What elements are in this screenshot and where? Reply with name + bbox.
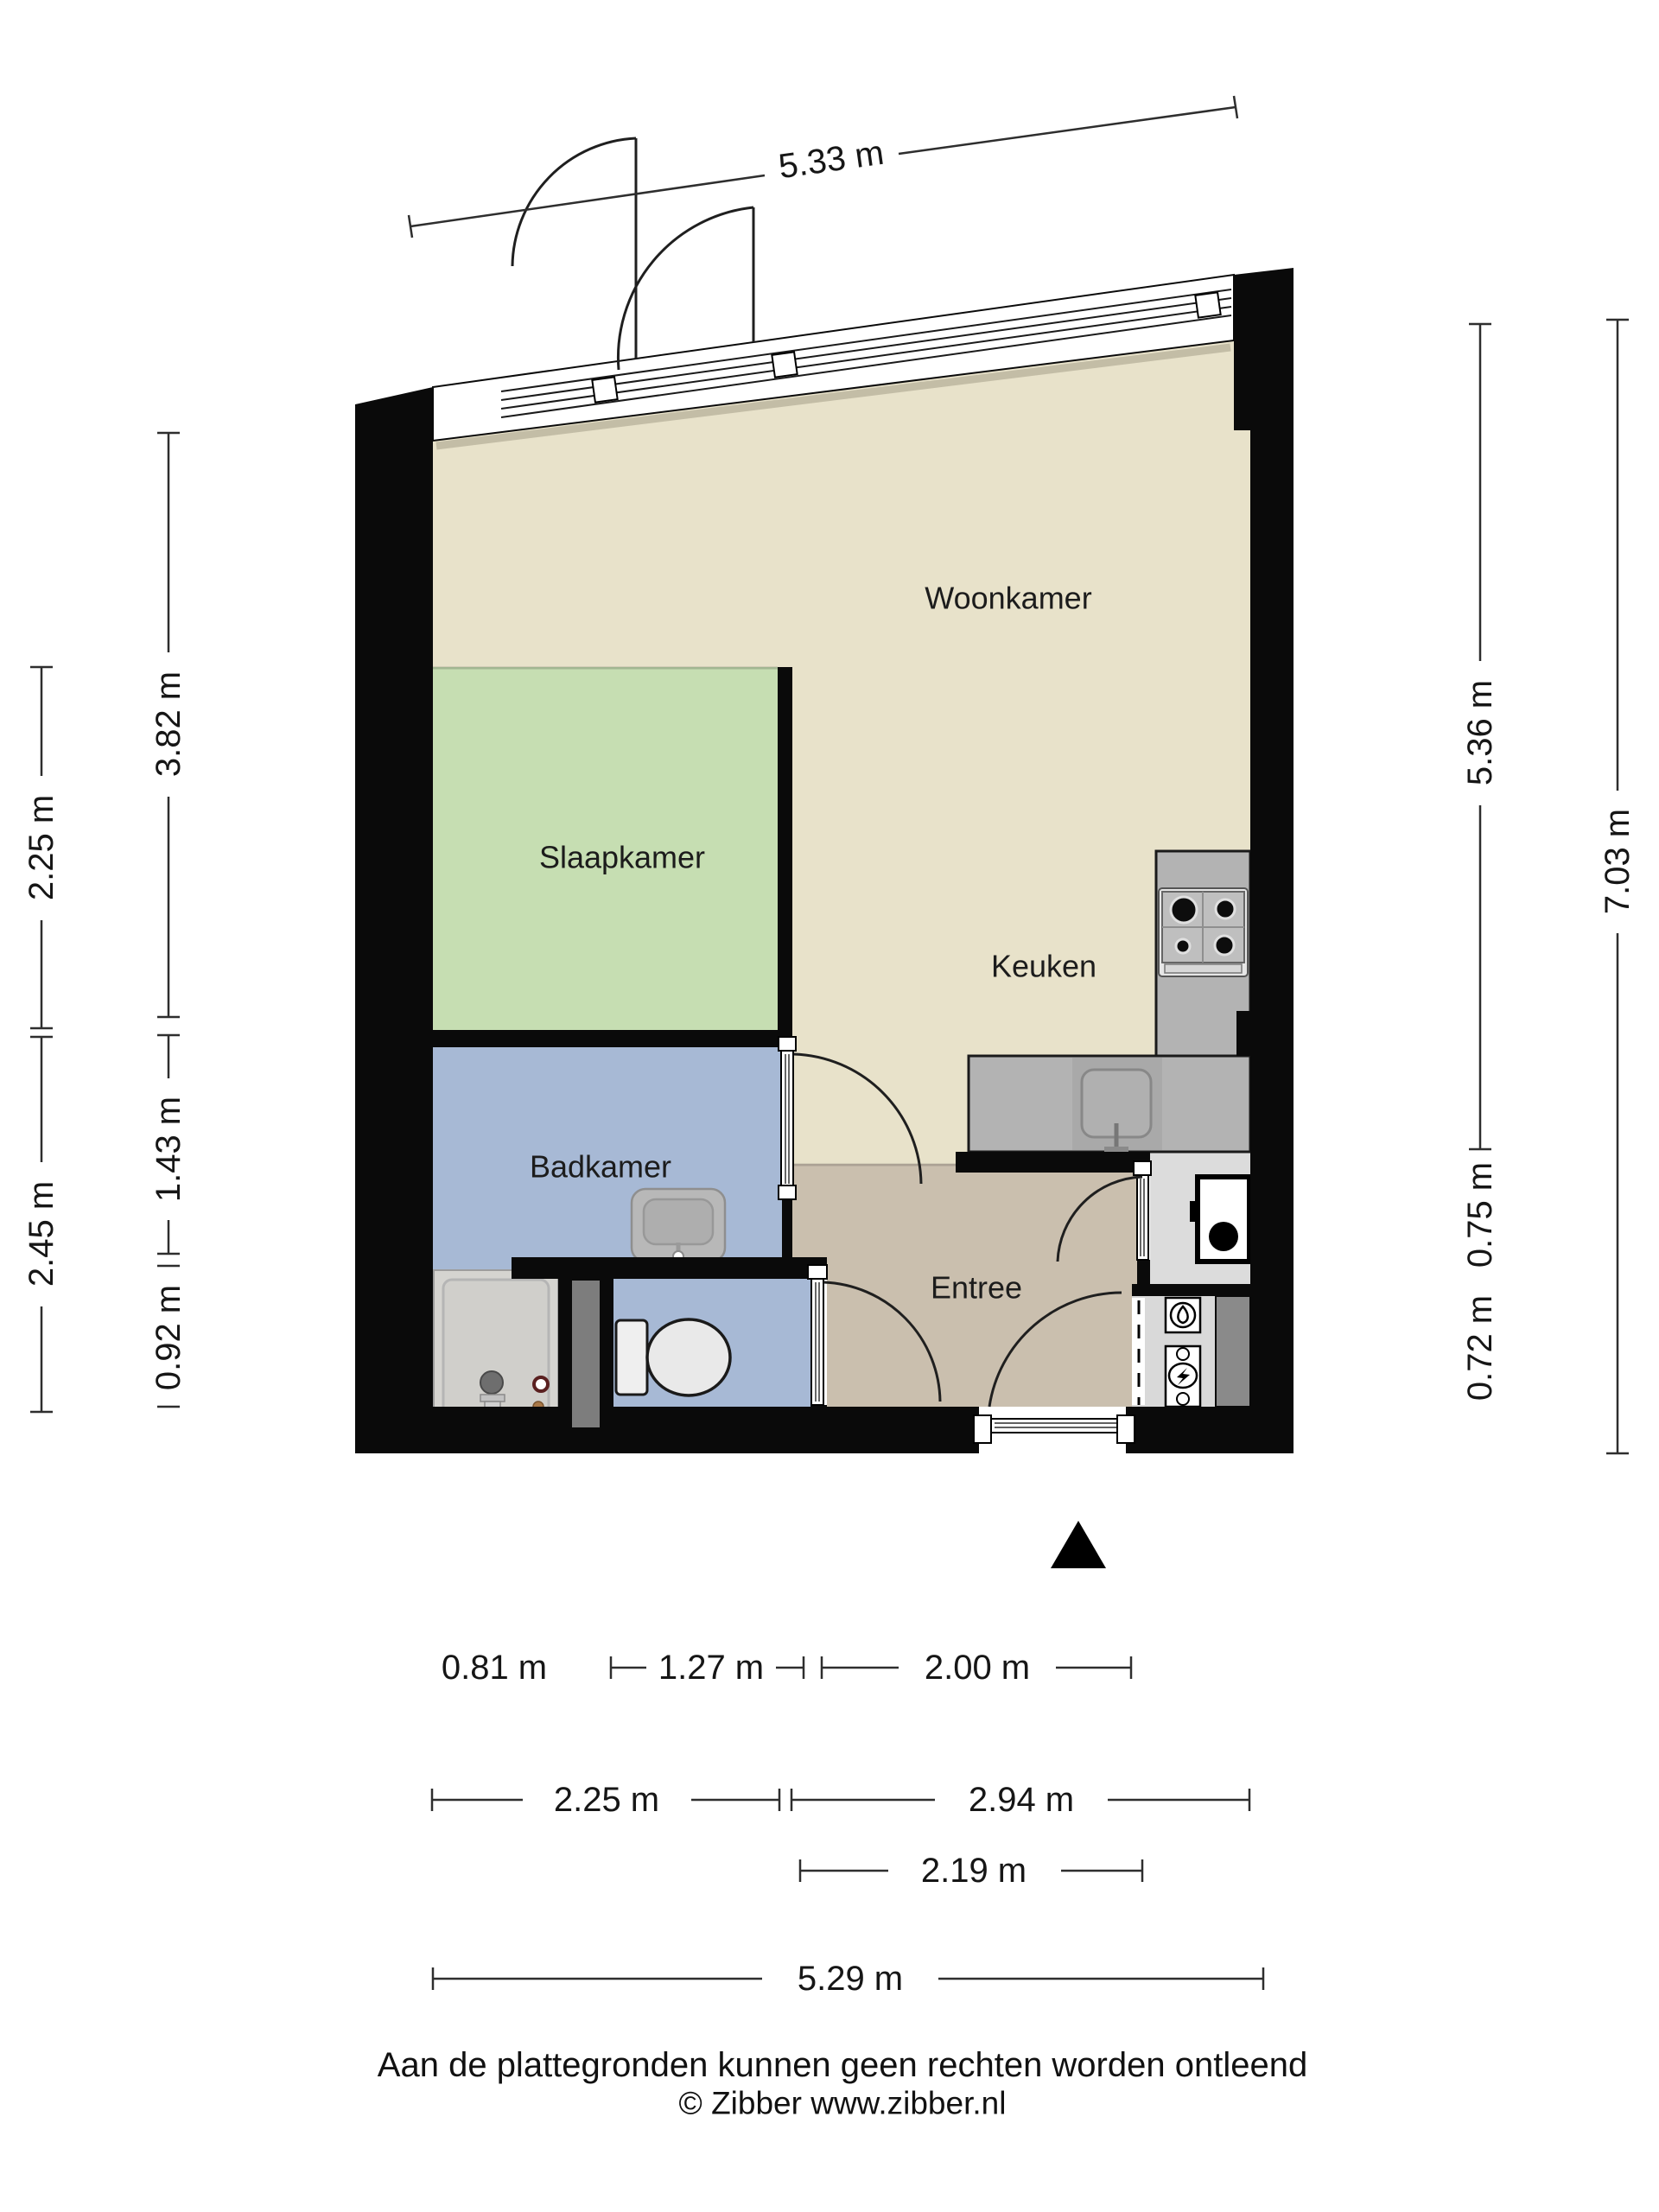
window-mullion	[592, 377, 617, 402]
wall-slaapkamer-right	[778, 667, 792, 1030]
dim-left-inner-upper: 3.82 m	[149, 671, 188, 777]
wall-bottom-left	[355, 1407, 979, 1453]
dim-toilet-width: 1.27 m	[658, 1649, 764, 1687]
copyright-text: © Zibber www.zibber.nl	[679, 2086, 1007, 2121]
dim-top-label: 5.33 m	[776, 134, 886, 187]
toilet-icon	[616, 1319, 730, 1395]
dim-row4-label: 5.29 m	[798, 1960, 903, 1998]
dim-bottom-row2: 2.25 m 2.94 m	[432, 1781, 1249, 1819]
meterkast-duct	[1216, 1296, 1250, 1407]
bathroom-sink-icon	[632, 1189, 725, 1262]
dim-bottom-row3: 2.19 m	[800, 1852, 1142, 1890]
keuken-label: Keuken	[991, 949, 1096, 984]
stove-icon	[1159, 888, 1248, 976]
wall-slaapkamer-bottom	[433, 1030, 792, 1047]
dim-right-outer: 7.03 m	[1599, 320, 1637, 1453]
electric-meter-icon	[1166, 1346, 1200, 1407]
wall-kitchen-lower	[956, 1152, 1150, 1173]
wall-closet-meterkast-divider	[1132, 1284, 1250, 1296]
badkamer-label: Badkamer	[530, 1149, 671, 1185]
dim-bottom-row4: 5.29 m	[433, 1960, 1263, 1998]
meterkast-door	[1132, 1298, 1145, 1405]
woonkamer-label: Woonkamer	[925, 581, 1091, 616]
wall-closet-left-lower	[1137, 1260, 1150, 1286]
window-mullion	[1195, 292, 1220, 317]
dim-right-inner-lower: 0.72 m	[1461, 1295, 1499, 1401]
dim-left-outer: 2.25 m 2.45 m	[22, 667, 60, 1412]
floorplan-page: Woonkamer Slaapkamer Keuken Badkamer Ent…	[0, 0, 1659, 2212]
dim-left-inner-middle: 1.43 m	[149, 1096, 188, 1202]
dim-left-outer-lower: 2.45 m	[22, 1181, 60, 1287]
dim-woonkamer-width: 2.94 m	[969, 1781, 1074, 1819]
dim-bottom-row1: 0.81 m 1.27 m 2.00 m	[442, 1649, 1131, 1687]
balcony-door-left	[512, 138, 636, 359]
dim-left-inner-lower: 0.92 m	[149, 1285, 188, 1390]
wall-right-top-block	[1234, 268, 1294, 430]
dim-shower-width: 0.81 m	[442, 1649, 547, 1687]
entrance-arrow-icon	[1051, 1521, 1106, 1568]
wall-right	[1250, 429, 1294, 1453]
wall-toilet-right-lower	[810, 1405, 827, 1433]
window-mullion	[772, 352, 797, 377]
dim-entree-width: 2.00 m	[925, 1649, 1030, 1687]
wall-pillar-right	[1236, 1011, 1250, 1056]
wall-left	[355, 387, 433, 1453]
entree-label: Entree	[931, 1270, 1022, 1306]
dim-right-outer-label: 7.03 m	[1599, 809, 1637, 914]
washing-machine-icon	[1190, 1177, 1249, 1262]
dim-left-outer-upper: 2.25 m	[22, 795, 60, 900]
dim-right-inner-middle: 0.75 m	[1461, 1162, 1499, 1268]
dim-right-inner-upper: 5.36 m	[1461, 680, 1499, 785]
floorplan-drawing: Woonkamer Slaapkamer Keuken Badkamer Ent…	[0, 0, 1659, 2212]
dim-top: 5.33 m	[409, 96, 1237, 238]
dim-row3-label: 2.19 m	[921, 1852, 1027, 1890]
wall-toilet-left-duct	[558, 1274, 613, 1433]
dim-right-inner: 5.36 m 0.75 m 0.72 m	[1461, 324, 1499, 1401]
gas-meter-icon	[1166, 1298, 1200, 1332]
dim-badkamer-width: 2.25 m	[554, 1781, 659, 1819]
disclaimer-text: Aan de plattegronden kunnen geen rechten…	[378, 2046, 1307, 2084]
slaapkamer-label: Slaapkamer	[539, 840, 705, 875]
dim-left-inner: 3.82 m 1.43 m 0.92 m	[149, 433, 188, 1407]
